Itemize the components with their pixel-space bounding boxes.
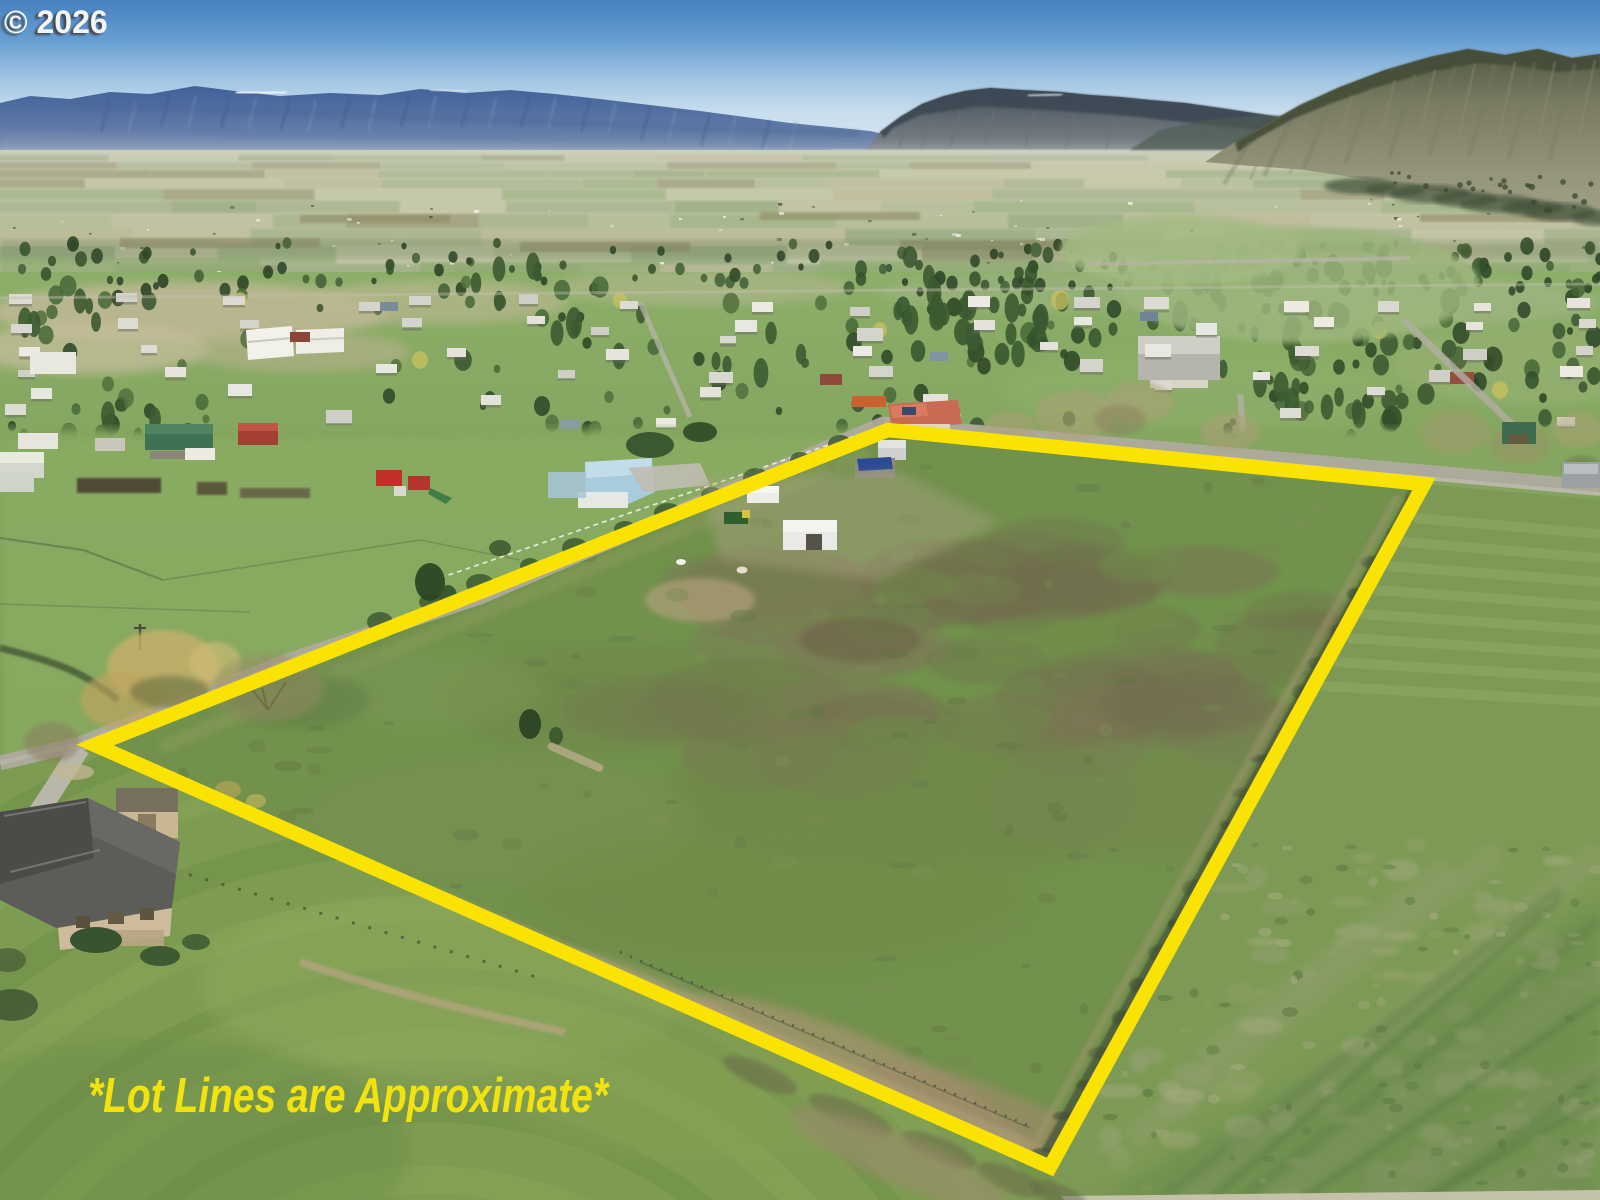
- svg-text:*Lot Lines are Approximate*: *Lot Lines are Approximate*: [88, 1069, 610, 1123]
- svg-text:© 2026: © 2026: [4, 4, 108, 40]
